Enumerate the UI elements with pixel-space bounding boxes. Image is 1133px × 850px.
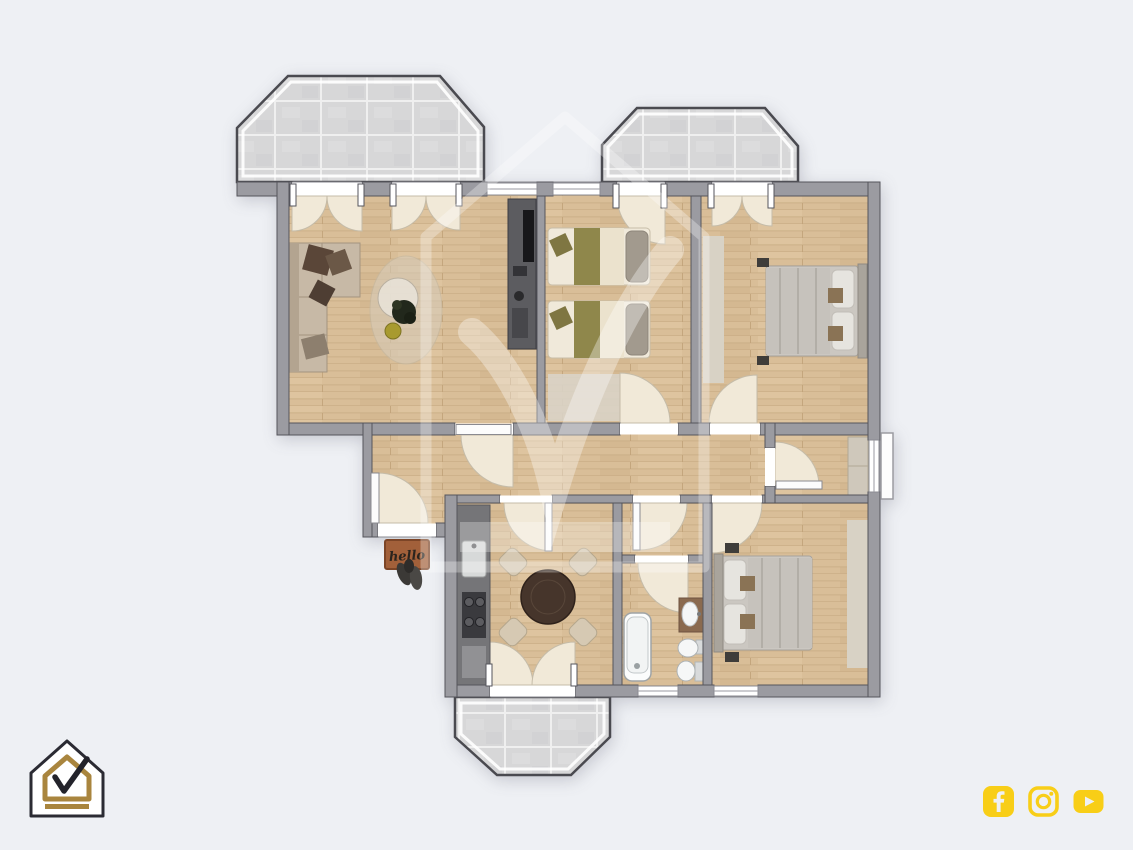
toilet [677, 661, 703, 681]
balcony-top-left [237, 76, 484, 182]
instagram-icon[interactable] [1027, 785, 1060, 818]
social-links [982, 785, 1105, 818]
youtube-icon[interactable] [1072, 785, 1105, 818]
house-check-brand-logo [27, 736, 107, 820]
logo-underline [45, 804, 89, 809]
bedroom-master-furniture [757, 258, 867, 365]
floor-plan: hello [0, 0, 1133, 850]
nightstand [725, 652, 739, 662]
vanity-sink [679, 598, 703, 632]
double-bed [714, 543, 812, 662]
dining-table [521, 570, 575, 624]
tray [385, 323, 401, 339]
double-bed [757, 258, 867, 365]
nightstand [757, 356, 769, 365]
nightstand [757, 258, 769, 267]
french-balcony-railing [881, 433, 893, 499]
rug-bedroom-second [847, 520, 868, 668]
tv-unit [508, 199, 536, 349]
facebook-icon[interactable] [982, 785, 1015, 818]
wardrobe [848, 437, 868, 495]
bathtub [624, 613, 651, 681]
nightstand [725, 543, 739, 553]
bidet [678, 639, 703, 657]
